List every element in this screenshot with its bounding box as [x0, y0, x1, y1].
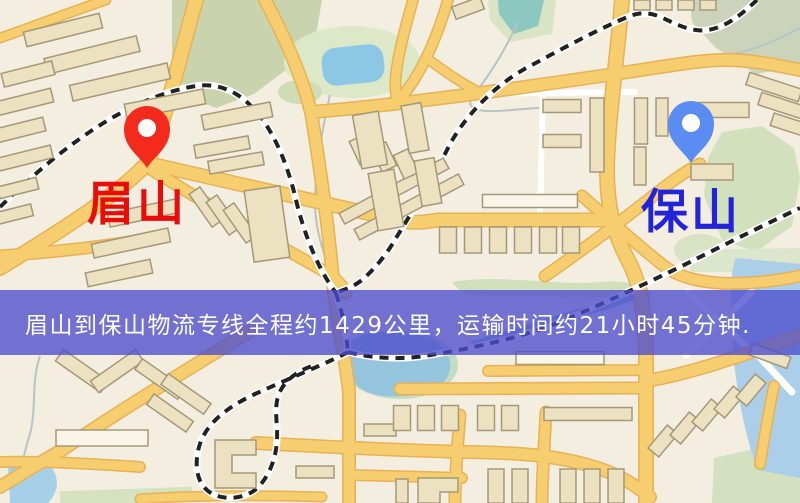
map-screenshot: 眉山 保山 眉山到保山物流专线全程约1429公里，运输时间约21小时45分钟.	[0, 0, 800, 503]
origin-label: 眉山	[87, 177, 187, 232]
origin-pin-hole	[138, 119, 156, 137]
route-info-text: 眉山到保山物流专线全程约1429公里，运输时间约21小时45分钟.	[25, 306, 751, 340]
map-canvas[interactable]: 眉山 保山	[0, 0, 800, 503]
destination-pin-hole	[682, 114, 700, 132]
destination-label: 保山	[641, 185, 741, 240]
route-info-banner: 眉山到保山物流专线全程约1429公里，运输时间约21小时45分钟.	[0, 290, 800, 355]
pond	[320, 43, 386, 87]
